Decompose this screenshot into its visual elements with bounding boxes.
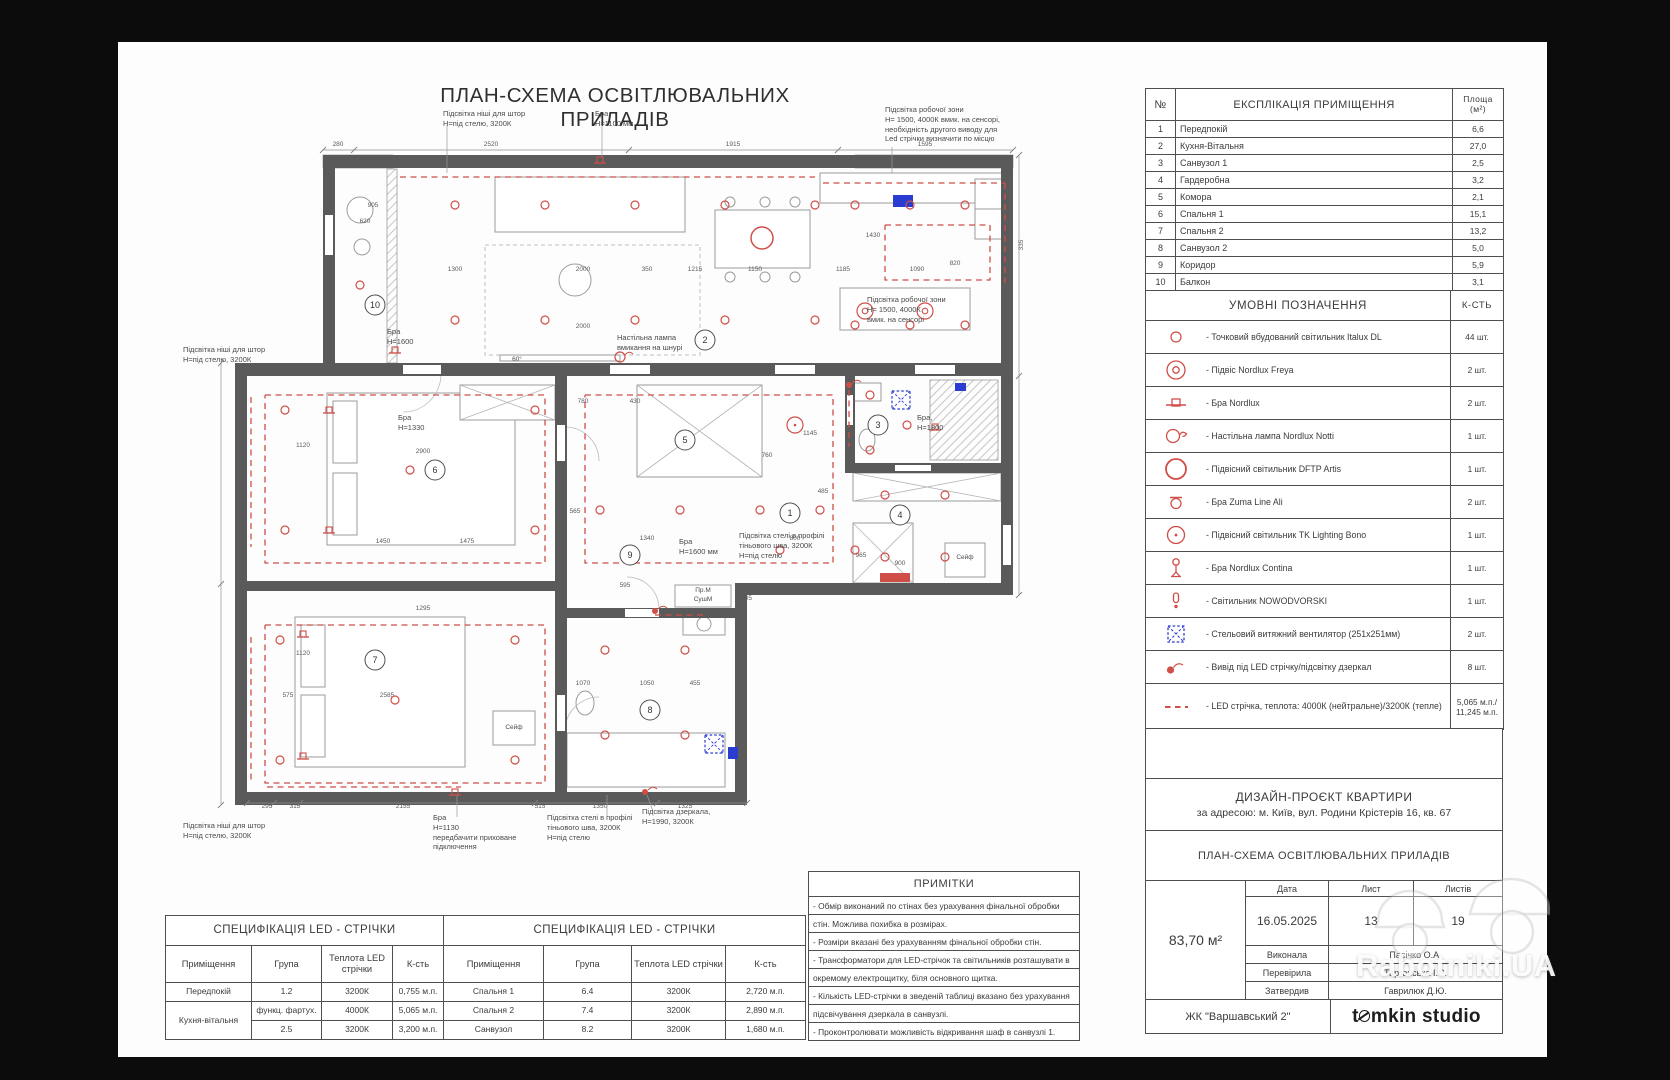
made-label: Виконала [1267, 950, 1307, 960]
plan-annotation: Підсвітка робочої зониH= 1500, 4000Квмик… [867, 295, 946, 324]
note-line: - Розміри вказані без урахуванням фіналь… [809, 933, 1080, 951]
spec-row: Передпокій1.23200К0,755 м.п. [166, 983, 444, 1002]
col-no-header: № [1146, 89, 1176, 121]
room-name: Коридор [1176, 257, 1453, 274]
studio-logo-o-glyph [1359, 1010, 1370, 1021]
svg-text:760: 760 [762, 452, 773, 459]
spec-col-header: Теплота LED стрічки [322, 946, 393, 983]
svg-text:Сейф: Сейф [956, 553, 974, 561]
spec-cell: 3200К [632, 983, 726, 1002]
legend-label: - Бра Zuma Line Ali [1206, 497, 1450, 508]
svg-text:1340: 1340 [640, 535, 655, 542]
spec-title-row: СПЕЦИФІКАЦІЯ LED - СТРІЧКИ [444, 916, 806, 946]
legend-qty: 1 шт. [1451, 519, 1504, 552]
note-line: окремому електрощитку, біля основного щи… [809, 969, 1080, 987]
pendant-artis-icon [1146, 456, 1206, 482]
room-area: 6,6 [1453, 121, 1504, 138]
note-row: окремому електрощитку, біля основного щи… [809, 969, 1080, 987]
ceiling-fan-icon [1146, 621, 1206, 647]
project-address: за адресою: м. Київ, вул. Родини Крістер… [1197, 807, 1452, 819]
room-row: 3Санвузол 12,5 [1146, 155, 1504, 172]
legend-qty: 44 шт. [1451, 321, 1504, 354]
legend-row: - LED стрічка, теплота: 4000К (нейтральн… [1146, 684, 1504, 730]
spec-cell: 1,680 м.п. [726, 1021, 806, 1040]
svg-text:1070: 1070 [576, 680, 591, 687]
legend-label: - Точковий вбудований світильник Italux … [1206, 332, 1450, 343]
plan-annotation: Підсвітка ніші для шторH=під стелю, 3200… [183, 345, 265, 365]
legend-qty: 1 шт. [1451, 585, 1504, 618]
spec-cell: 6.4 [544, 983, 632, 1002]
svg-text:1350: 1350 [593, 803, 608, 810]
room-number: 9 [1146, 257, 1176, 274]
room-area: 5,0 [1453, 240, 1504, 257]
room-area: 5,9 [1453, 257, 1504, 274]
room-name: Гардеробна [1176, 172, 1453, 189]
svg-text:2900: 2900 [416, 448, 431, 455]
svg-text:2000: 2000 [576, 323, 591, 330]
note-row: - Проконтролювати можливість відкривання… [809, 1023, 1080, 1041]
svg-text:2520: 2520 [484, 141, 499, 148]
room-area: 27,0 [1453, 138, 1504, 155]
spec-row: Спальня 27.43200К2,890 м.п. [444, 1002, 806, 1021]
svg-text:1150: 1150 [748, 266, 762, 273]
svg-text:1215: 1215 [688, 266, 703, 273]
spec-col-header: Теплота LED стрічки [632, 946, 726, 983]
room-area: 3,1 [1453, 274, 1504, 291]
svg-text:1430: 1430 [866, 232, 881, 239]
legend-qty: 1 шт. [1451, 420, 1504, 453]
spec-col-header: К-сть [393, 946, 444, 983]
notes-title: ПРИМІТКИ [809, 872, 1080, 897]
title-block-empty-cell [1145, 728, 1503, 779]
spec-cell: Кухня-вітальня [166, 1002, 252, 1040]
legend-row: - Бра Zuma Line Ali2 шт. [1146, 486, 1504, 519]
legend-label: - Бра Nordlux Contina [1206, 563, 1450, 574]
legend-row: - Настільна лампа Nordlux Notti1 шт. [1146, 420, 1504, 453]
date-header-cell: Дата [1245, 880, 1329, 897]
project-title-cell: ДИЗАЙН-ПРОЄКТ КВАРТИРИ за адресою: м. Ки… [1145, 778, 1503, 831]
note-line: - Трансформатори для LED-стрічок та світ… [809, 951, 1080, 969]
plan-annotation: Бра,H=1100 мм [595, 109, 633, 129]
legend-row: - Стельовий витяжний вентилятор (251x251… [1146, 618, 1504, 651]
total-area: 83,70 м² [1169, 932, 1222, 948]
svg-text:595: 595 [620, 582, 631, 589]
room-area: 2,1 [1453, 189, 1504, 206]
room-name: Комора [1176, 189, 1453, 206]
approved-label: Затвердив [1265, 986, 1309, 996]
total-area-cell: 83,70 м² [1145, 880, 1246, 1000]
notes: ПРИМІТКИ- Обмір виконаний по стінах без … [808, 871, 1080, 1041]
svg-text:295: 295 [262, 803, 273, 810]
checked-label-cell: Перевірила [1245, 963, 1329, 982]
legend-row: - Підвісний світильник TK Lighting Bono1… [1146, 519, 1504, 552]
led-output-icon [1146, 654, 1206, 680]
table-lamp-icon [1146, 423, 1206, 449]
room-area: 2,5 [1453, 155, 1504, 172]
led-spec-table-1: СПЕЦИФІКАЦІЯ LED - СТРІЧКИПриміщенняГруп… [165, 915, 444, 1040]
legend-label: - Підвісний світильник DFTP Artis [1206, 464, 1450, 475]
svg-text:1120: 1120 [296, 650, 310, 657]
svg-text:10: 10 [370, 300, 380, 310]
note-row: стін. Можлива похибка в розмірах. [809, 915, 1080, 933]
spec-row: Спальня 16.43200К2,720 м.п. [444, 983, 806, 1002]
led-spec: СПЕЦИФІКАЦІЯ LED - СТРІЧКИПриміщенняГруп… [165, 915, 444, 1040]
svg-text:2000: 2000 [576, 266, 591, 273]
room-row: 7Спальня 213,2 [1146, 223, 1504, 240]
room-number: 2 [1146, 138, 1176, 155]
svg-text:Пр.М: Пр.М [695, 587, 711, 594]
legend-label: - LED стрічка, теплота: 4000К (нейтральн… [1206, 701, 1450, 712]
legend-row: - Вивід під LED стрічку/підсвітку дзерка… [1146, 651, 1504, 684]
studio-logo-cell: tmkin studio [1330, 999, 1503, 1034]
legend-row: - Підвісний світильник DFTP Artis1 шт. [1146, 453, 1504, 486]
plan-annotation: Підсвітка робочої зониH= 1500, 4000К вми… [885, 105, 1000, 144]
legend-qty: 1 шт. [1451, 552, 1504, 585]
svg-text:4: 4 [897, 510, 902, 520]
pendant-freya-icon [1146, 357, 1206, 383]
spec-cell: 0,755 м.п. [393, 983, 444, 1002]
legend-qty: 1 шт. [1451, 453, 1504, 486]
svg-text:1475: 1475 [460, 538, 475, 545]
room-name: Санвузол 1 [1176, 155, 1453, 172]
spec-cell: Передпокій [166, 983, 252, 1002]
svg-text:485: 485 [818, 488, 829, 495]
room-name: Спальня 1 [1176, 206, 1453, 223]
svg-text:2: 2 [702, 335, 707, 345]
legend-qty: 2 шт. [1451, 387, 1504, 420]
plan-annotation: БраH=1130передбачити прихованепідключенн… [433, 813, 516, 852]
room-number: 8 [1146, 240, 1176, 257]
svg-text:9: 9 [627, 550, 632, 560]
svg-text:1450: 1450 [376, 538, 391, 545]
svg-text:455: 455 [690, 680, 701, 687]
svg-text:60°: 60° [512, 355, 522, 363]
floor-plan-area: 2802520191515951300200035012151150118510… [155, 95, 1145, 885]
note-row: - Кількість LED-стрічки в зведеній табли… [809, 987, 1080, 1005]
svg-text:2585: 2585 [380, 692, 395, 699]
spec-cell: Санвузол [444, 1021, 544, 1040]
spec-cell: Спальня 2 [444, 1002, 544, 1021]
room-name: Спальня 2 [1176, 223, 1453, 240]
legend-qty: 2 шт. [1451, 618, 1504, 651]
sconce-zuma-icon [1146, 489, 1206, 515]
floor-plan-svg: 2802520191515951300200035012151150118510… [155, 95, 1145, 885]
checked-label: Перевірила [1263, 968, 1312, 978]
plan-annotation: Підсвітка стелі в профілітіньового шва, … [739, 531, 824, 560]
plan-annotation: БраH=1600 [387, 327, 413, 347]
note-line: - Кількість LED-стрічки в зведеній табли… [809, 987, 1080, 1005]
svg-text:335: 335 [1018, 239, 1025, 250]
spec-cell: 1.2 [252, 983, 322, 1002]
note-row: підсвічування дзеркала в санвузлі. [809, 1005, 1080, 1023]
approved-value: Гаврилюк Д.Ю. [1384, 986, 1447, 996]
svg-text:565: 565 [570, 508, 581, 515]
room-area: 3,2 [1453, 172, 1504, 189]
plan-annotation: Підсвітка ніші для шторH=під стелю, 3200… [183, 821, 265, 841]
plan-annotation: Бра,H=1800 [917, 413, 943, 433]
spec-title: СПЕЦИФІКАЦІЯ LED - СТРІЧКИ [166, 916, 444, 946]
svg-text:8: 8 [647, 705, 652, 715]
note-row: - Обмір виконаний по стінах без урахуван… [809, 897, 1080, 915]
spec-cell: 8.2 [544, 1021, 632, 1040]
legend-label: - Бра Nordlux [1206, 398, 1450, 409]
floor-plan-drawing: 2802520191515951300200035012151150118510… [155, 95, 1145, 890]
date-header: Дата [1277, 884, 1297, 894]
spec-cell: Спальня 1 [444, 983, 544, 1002]
led-spec-table-2: СПЕЦИФІКАЦІЯ LED - СТРІЧКИПриміщенняГруп… [443, 915, 806, 1040]
legend-table: УМОВНІ ПОЗНАЧЕННЯК-СТЬ- Точковий вбудова… [1145, 290, 1504, 730]
legend-row: - Точковий вбудований світильник Italux … [1146, 321, 1504, 354]
room-number: 1 [1146, 121, 1176, 138]
note-line: - Проконтролювати можливість відкривання… [809, 1023, 1080, 1041]
residential-complex: ЖК "Варшавський 2" [1185, 1011, 1290, 1023]
svg-text:620: 620 [360, 218, 371, 225]
studio-logo: tmkin studio [1352, 1006, 1481, 1028]
spec-col-header: К-сть [726, 946, 806, 983]
room-number: 6 [1146, 206, 1176, 223]
svg-text:515: 515 [535, 803, 546, 810]
legend-label: - Настільна лампа Nordlux Notti [1206, 431, 1450, 442]
watermark-text: Rabotniki.UA [1356, 948, 1557, 984]
room-explication-table: №ЕКСПЛІКАЦІЯ ПРИМІЩЕННЯПлоща(м²)1Передпо… [1145, 88, 1504, 291]
room-name: Балкон [1176, 274, 1453, 291]
svg-text:1300: 1300 [448, 266, 463, 273]
spec-col-header: Приміщення [166, 946, 252, 983]
explication-title: ЕКСПЛІКАЦІЯ ПРИМІЩЕННЯ [1176, 89, 1453, 121]
legend-row: - Бра Nordlux2 шт. [1146, 387, 1504, 420]
plan-annotation: Підсвітка стелі в профілітіньового шва, … [547, 813, 632, 842]
spec-col-header: Група [252, 946, 322, 983]
legend-row: - Світильник NOWODVORSKI1 шт. [1146, 585, 1504, 618]
svg-text:1915: 1915 [726, 141, 741, 148]
svg-text:Сейф: Сейф [505, 723, 523, 731]
legend-label: - Підвіс Nordlux Freya [1206, 365, 1450, 376]
spec-header-row: ПриміщенняГрупаТеплота LED стрічкиК-сть [444, 946, 806, 983]
spec-cell: 3200К [632, 1002, 726, 1021]
legend-qty: 2 шт. [1451, 486, 1504, 519]
legend-row: - Бра Nordlux Contina1 шт. [1146, 552, 1504, 585]
legend-qty: 2 шт. [1451, 354, 1504, 387]
svg-text:1120: 1120 [296, 442, 310, 449]
room-row: 4Гардеробна3,2 [1146, 172, 1504, 189]
svg-text:350: 350 [642, 266, 653, 273]
svg-text:3: 3 [875, 420, 880, 430]
room-area: 13,2 [1453, 223, 1504, 240]
legend: УМОВНІ ПОЗНАЧЕННЯК-СТЬ- Точковий вбудова… [1145, 290, 1504, 730]
svg-text:5: 5 [682, 435, 687, 445]
spec-cell: 2,890 м.п. [726, 1002, 806, 1021]
room-name: Санвузол 2 [1176, 240, 1453, 257]
room-row: 6Спальня 115,1 [1146, 206, 1504, 223]
room-row: 10Балкон3,1 [1146, 274, 1504, 291]
svg-text:905: 905 [368, 202, 379, 209]
led-spec: СПЕЦИФІКАЦІЯ LED - СТРІЧКИПриміщенняГруп… [443, 915, 806, 1040]
note-line: стін. Можлива похибка в розмірах. [809, 915, 1080, 933]
note-row: - Трансформатори для LED-стрічок та світ… [809, 951, 1080, 969]
room-row: 1Передпокій6,6 [1146, 121, 1504, 138]
spec-cell: 2,720 м.п. [726, 983, 806, 1002]
legend-header-row: УМОВНІ ПОЗНАЧЕННЯК-СТЬ [1146, 291, 1504, 321]
spec-col-header: Приміщення [444, 946, 544, 983]
legend-label: - Світильник NOWODVORSKI [1206, 596, 1450, 607]
spec-title: СПЕЦИФІКАЦІЯ LED - СТРІЧКИ [444, 916, 806, 946]
svg-text:2155: 2155 [396, 803, 411, 810]
svg-text:280: 280 [333, 141, 344, 148]
svg-text:1145: 1145 [803, 430, 817, 437]
plan-annotation: Підсвітка дзеркала,H=1990, 3200К [642, 807, 710, 827]
room-number: 7 [1146, 223, 1176, 240]
svg-text:6: 6 [432, 465, 437, 475]
svg-text:575: 575 [283, 692, 294, 699]
spec-cell: 2.5 [252, 1021, 322, 1040]
notes-table: ПРИМІТКИ- Обмір виконаний по стінах без … [808, 871, 1080, 1041]
room-row: 5Комора2,1 [1146, 189, 1504, 206]
downlight-icon [1146, 324, 1206, 350]
legend-qty: 8 шт. [1451, 651, 1504, 684]
notes-title-row: ПРИМІТКИ [809, 872, 1080, 897]
svg-text:315: 315 [290, 803, 301, 810]
room-number: 3 [1146, 155, 1176, 172]
viewer-stage: ПЛАН-СХЕМА ОСВІТЛЮВАЛЬНИХ ПРИЛАДІВ 28025… [0, 0, 1670, 1080]
svg-text:430: 430 [630, 398, 641, 405]
spec-title-row: СПЕЦИФІКАЦІЯ LED - СТРІЧКИ [166, 916, 444, 946]
col-area-header: Площа(м²) [1453, 89, 1504, 121]
led-strip-icon [1146, 694, 1206, 720]
spec-cell: 3,200 м.п. [393, 1021, 444, 1040]
room-area: 15,1 [1453, 206, 1504, 223]
spec-cell: 3200К [322, 1021, 393, 1040]
legend-qty: 5,065 м.п./ 11,245 м.п. [1451, 684, 1504, 730]
room-number: 10 [1146, 274, 1176, 291]
project-title: ДИЗАЙН-ПРОЄКТ КВАРТИРИ [1236, 790, 1413, 804]
spec-col-header: Група [544, 946, 632, 983]
svg-text:СушМ: СушМ [694, 596, 713, 603]
room-name: Передпокій [1176, 121, 1453, 138]
svg-text:900: 900 [895, 560, 906, 567]
spec-cell: 4000К [322, 1002, 393, 1021]
residential-complex-cell: ЖК "Варшавський 2" [1145, 999, 1331, 1034]
svg-text:820: 820 [950, 260, 961, 267]
note-row: - Розміри вказані без урахуванням фіналь… [809, 933, 1080, 951]
explication: №ЕКСПЛІКАЦІЯ ПРИМІЩЕННЯПлоща(м²)1Передпо… [1145, 88, 1504, 291]
svg-text:1: 1 [787, 508, 792, 518]
explication-header-row: №ЕКСПЛІКАЦІЯ ПРИМІЩЕННЯПлоща(м²) [1146, 89, 1504, 121]
svg-text:780: 780 [578, 398, 589, 405]
plan-annotation: Підсвітка ніші для шторH=під стелю, 3200… [443, 109, 525, 129]
sconce-contina-icon [1146, 555, 1206, 581]
room-row: 8Санвузол 25,0 [1146, 240, 1504, 257]
legend-label: - Підвісний світильник TK Lighting Bono [1206, 530, 1450, 541]
room-number: 4 [1146, 172, 1176, 189]
legend-label: - Стельовий витяжний вентилятор (251x251… [1206, 629, 1450, 640]
pendant-bono-icon [1146, 522, 1206, 548]
plan-annotation: БраH=1600 мм [679, 537, 718, 557]
legend-qty-header: К-СТЬ [1451, 291, 1504, 321]
note-line: - Обмір виконаний по стінах без урахуван… [809, 897, 1080, 915]
made-label-cell: Виконала [1245, 945, 1329, 964]
date-value: 16.05.2025 [1257, 914, 1317, 928]
spec-cell: 5,065 м.п. [393, 1002, 444, 1021]
approved-label-cell: Затвердив [1245, 981, 1329, 1000]
room-number: 5 [1146, 189, 1176, 206]
room-row: 9Коридор5,9 [1146, 257, 1504, 274]
date-value-cell: 16.05.2025 [1245, 896, 1329, 946]
plan-annotation: БраH=1330 [398, 413, 424, 433]
svg-text:1295: 1295 [416, 605, 431, 612]
svg-text:7: 7 [372, 655, 377, 665]
svg-text:1185: 1185 [836, 266, 850, 273]
svg-text:1050: 1050 [640, 680, 655, 687]
legend-label: - Вивід під LED стрічку/підсвітку дзерка… [1206, 662, 1450, 673]
room-name: Кухня-Вітальня [1176, 138, 1453, 155]
svg-text:1105: 1105 [738, 595, 752, 602]
legend-title: УМОВНІ ПОЗНАЧЕННЯ [1146, 291, 1451, 321]
spec-cell: функц. фартух. [252, 1002, 322, 1021]
note-line: підсвічування дзеркала в санвузлі. [809, 1005, 1080, 1023]
spec-row: Кухня-вітальняфункц. фартух.4000К5,065 м… [166, 1002, 444, 1021]
sconce-nordlux-icon [1146, 390, 1206, 416]
nowodvorski-light-icon [1146, 588, 1206, 614]
spec-cell: 3200К [632, 1021, 726, 1040]
spec-cell: 3200К [322, 983, 393, 1002]
plan-annotation: Настільна лампавмикання на шнурі [617, 333, 682, 353]
legend-row: - Підвіс Nordlux Freya2 шт. [1146, 354, 1504, 387]
spec-header-row: ПриміщенняГрупаТеплота LED стрічкиК-сть [166, 946, 444, 983]
svg-text:1090: 1090 [910, 266, 925, 273]
room-row: 2Кухня-Вітальня27,0 [1146, 138, 1504, 155]
spec-row: Санвузол8.23200К1,680 м.п. [444, 1021, 806, 1040]
spec-cell: 7.4 [544, 1002, 632, 1021]
